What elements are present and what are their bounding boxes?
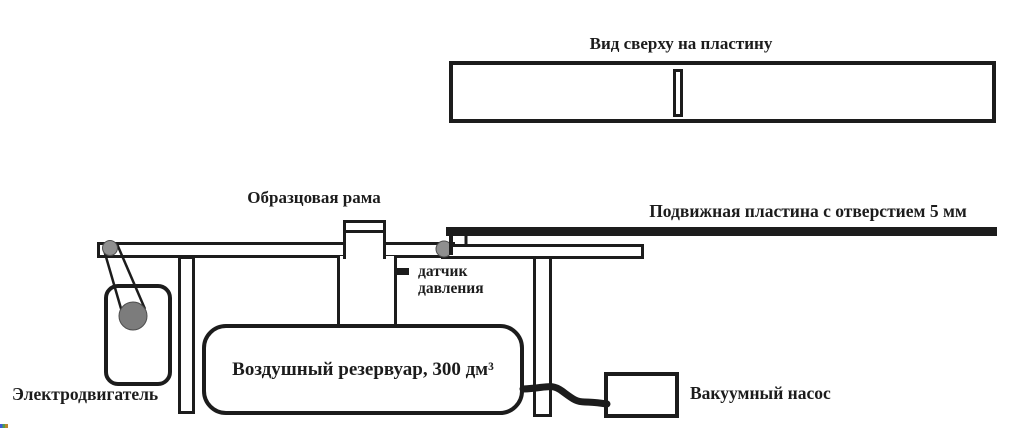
- vacuum-pump-label: Вакуумный насос: [690, 383, 831, 404]
- movable-plate-label: Подвижная пластина с отверстием 5 мм: [608, 201, 1008, 222]
- air-reservoir-label: Воздушный резервуар, 300 дм³: [232, 359, 494, 381]
- stand-leg-left: [178, 256, 195, 414]
- air-reservoir: Воздушный резервуар, 300 дм³: [202, 324, 524, 415]
- electric-motor-label: Электродвигатель: [12, 384, 158, 405]
- movable-plate-bar: [446, 227, 997, 236]
- plate-hole-slot: [673, 69, 683, 117]
- electric-motor-housing: [104, 284, 172, 386]
- stand-leg-right: [533, 256, 552, 417]
- pressure-sensor-port: [394, 268, 409, 275]
- sample-frame-block: [343, 220, 386, 259]
- pressure-sensor-label: датчик давления: [418, 263, 484, 297]
- frame-rail-left: [97, 242, 455, 258]
- sensor-column: [337, 256, 397, 326]
- reference-frame-label: Образцовая рама: [214, 188, 414, 208]
- pressure-sensor-label-line1: датчик: [418, 263, 467, 280]
- corner-artifact: [0, 424, 8, 428]
- sample-frame-inner-line: [346, 230, 383, 233]
- top-view-title: Вид сверху на пластину: [481, 34, 881, 54]
- top-view-plate-outline: [449, 61, 996, 123]
- pressure-sensor-label-line2: давления: [418, 280, 484, 297]
- vacuum-pump-box: [604, 372, 679, 418]
